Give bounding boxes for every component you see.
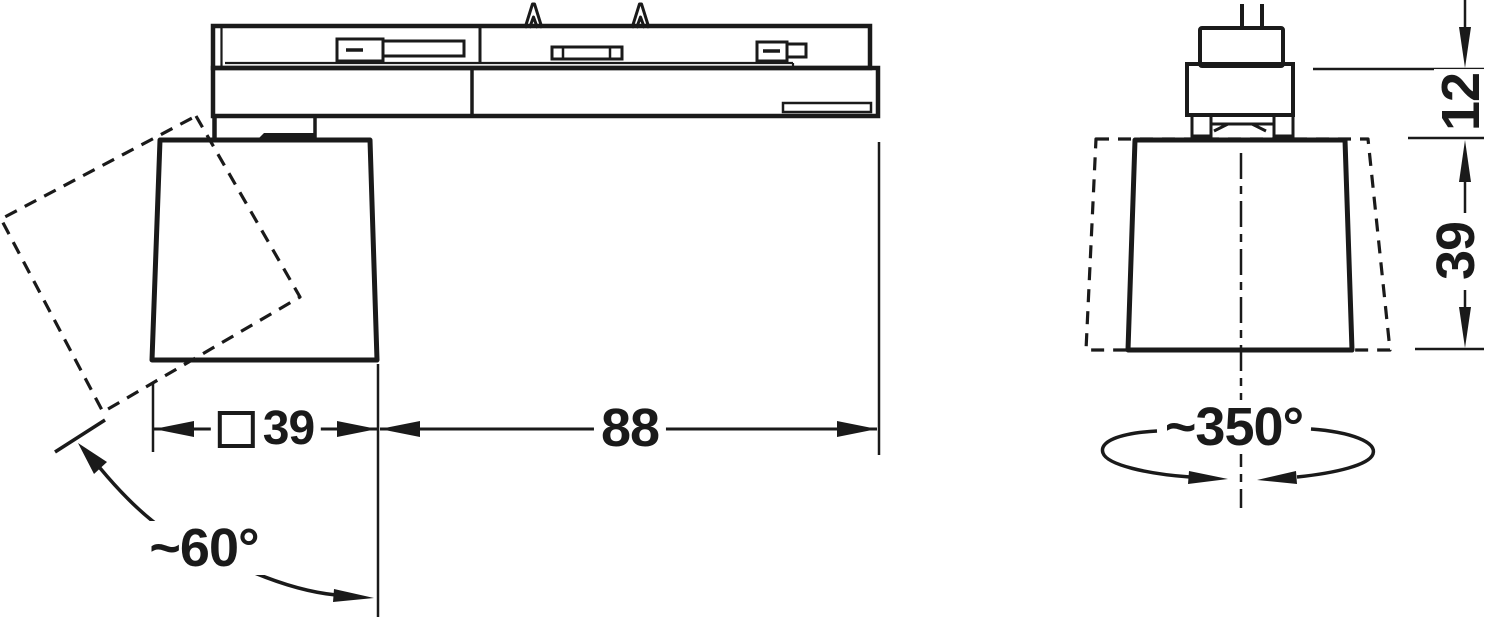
dim-head-height-label: 39 bbox=[1429, 218, 1483, 284]
track-adapter-side-view bbox=[213, 4, 878, 140]
swivel-joint-tab bbox=[256, 133, 316, 141]
plug-lower-body bbox=[1187, 64, 1293, 115]
head-outline bbox=[152, 140, 377, 360]
latch-right bbox=[757, 42, 806, 61]
dim-tilt-angle-label: ~60° bbox=[142, 521, 265, 575]
plug-upper-body bbox=[1200, 28, 1283, 66]
track-plug-front-view bbox=[1187, 4, 1293, 136]
tilt-reference-line bbox=[55, 420, 105, 452]
selector-slider bbox=[552, 47, 622, 59]
spotlight-head-side-view bbox=[1, 116, 377, 412]
technical-drawing: 39 88 ~60° ~350° 12 39 bbox=[0, 0, 1488, 619]
dim-arm-length-label: 88 bbox=[594, 401, 666, 455]
dim-rotation-angle-label: ~350° bbox=[1158, 400, 1310, 454]
arrow-left-icon bbox=[380, 421, 420, 437]
arrow-down-icon bbox=[1459, 307, 1471, 348]
square-symbol bbox=[218, 411, 255, 448]
arrow-right-icon bbox=[837, 421, 877, 437]
latch-left bbox=[337, 39, 464, 61]
plug-foot bbox=[1192, 115, 1211, 136]
arrow-right-icon bbox=[337, 421, 377, 437]
rail-housing-lower bbox=[213, 68, 878, 116]
arrow-left-icon bbox=[1257, 471, 1297, 484]
dim-adapter-offset-label: 12 bbox=[1434, 69, 1488, 135]
arrow-right-icon bbox=[1188, 471, 1228, 484]
dim-head-width-label: 39 bbox=[211, 405, 321, 453]
arrow-left-icon bbox=[154, 421, 194, 437]
arrow-right-icon bbox=[333, 589, 374, 602]
arrow-down-icon bbox=[1459, 27, 1471, 68]
plug-foot bbox=[1274, 115, 1293, 136]
housing-slot bbox=[783, 103, 871, 112]
arrow-up-icon bbox=[1459, 140, 1471, 182]
dim-head-width-value: 39 bbox=[263, 405, 314, 453]
